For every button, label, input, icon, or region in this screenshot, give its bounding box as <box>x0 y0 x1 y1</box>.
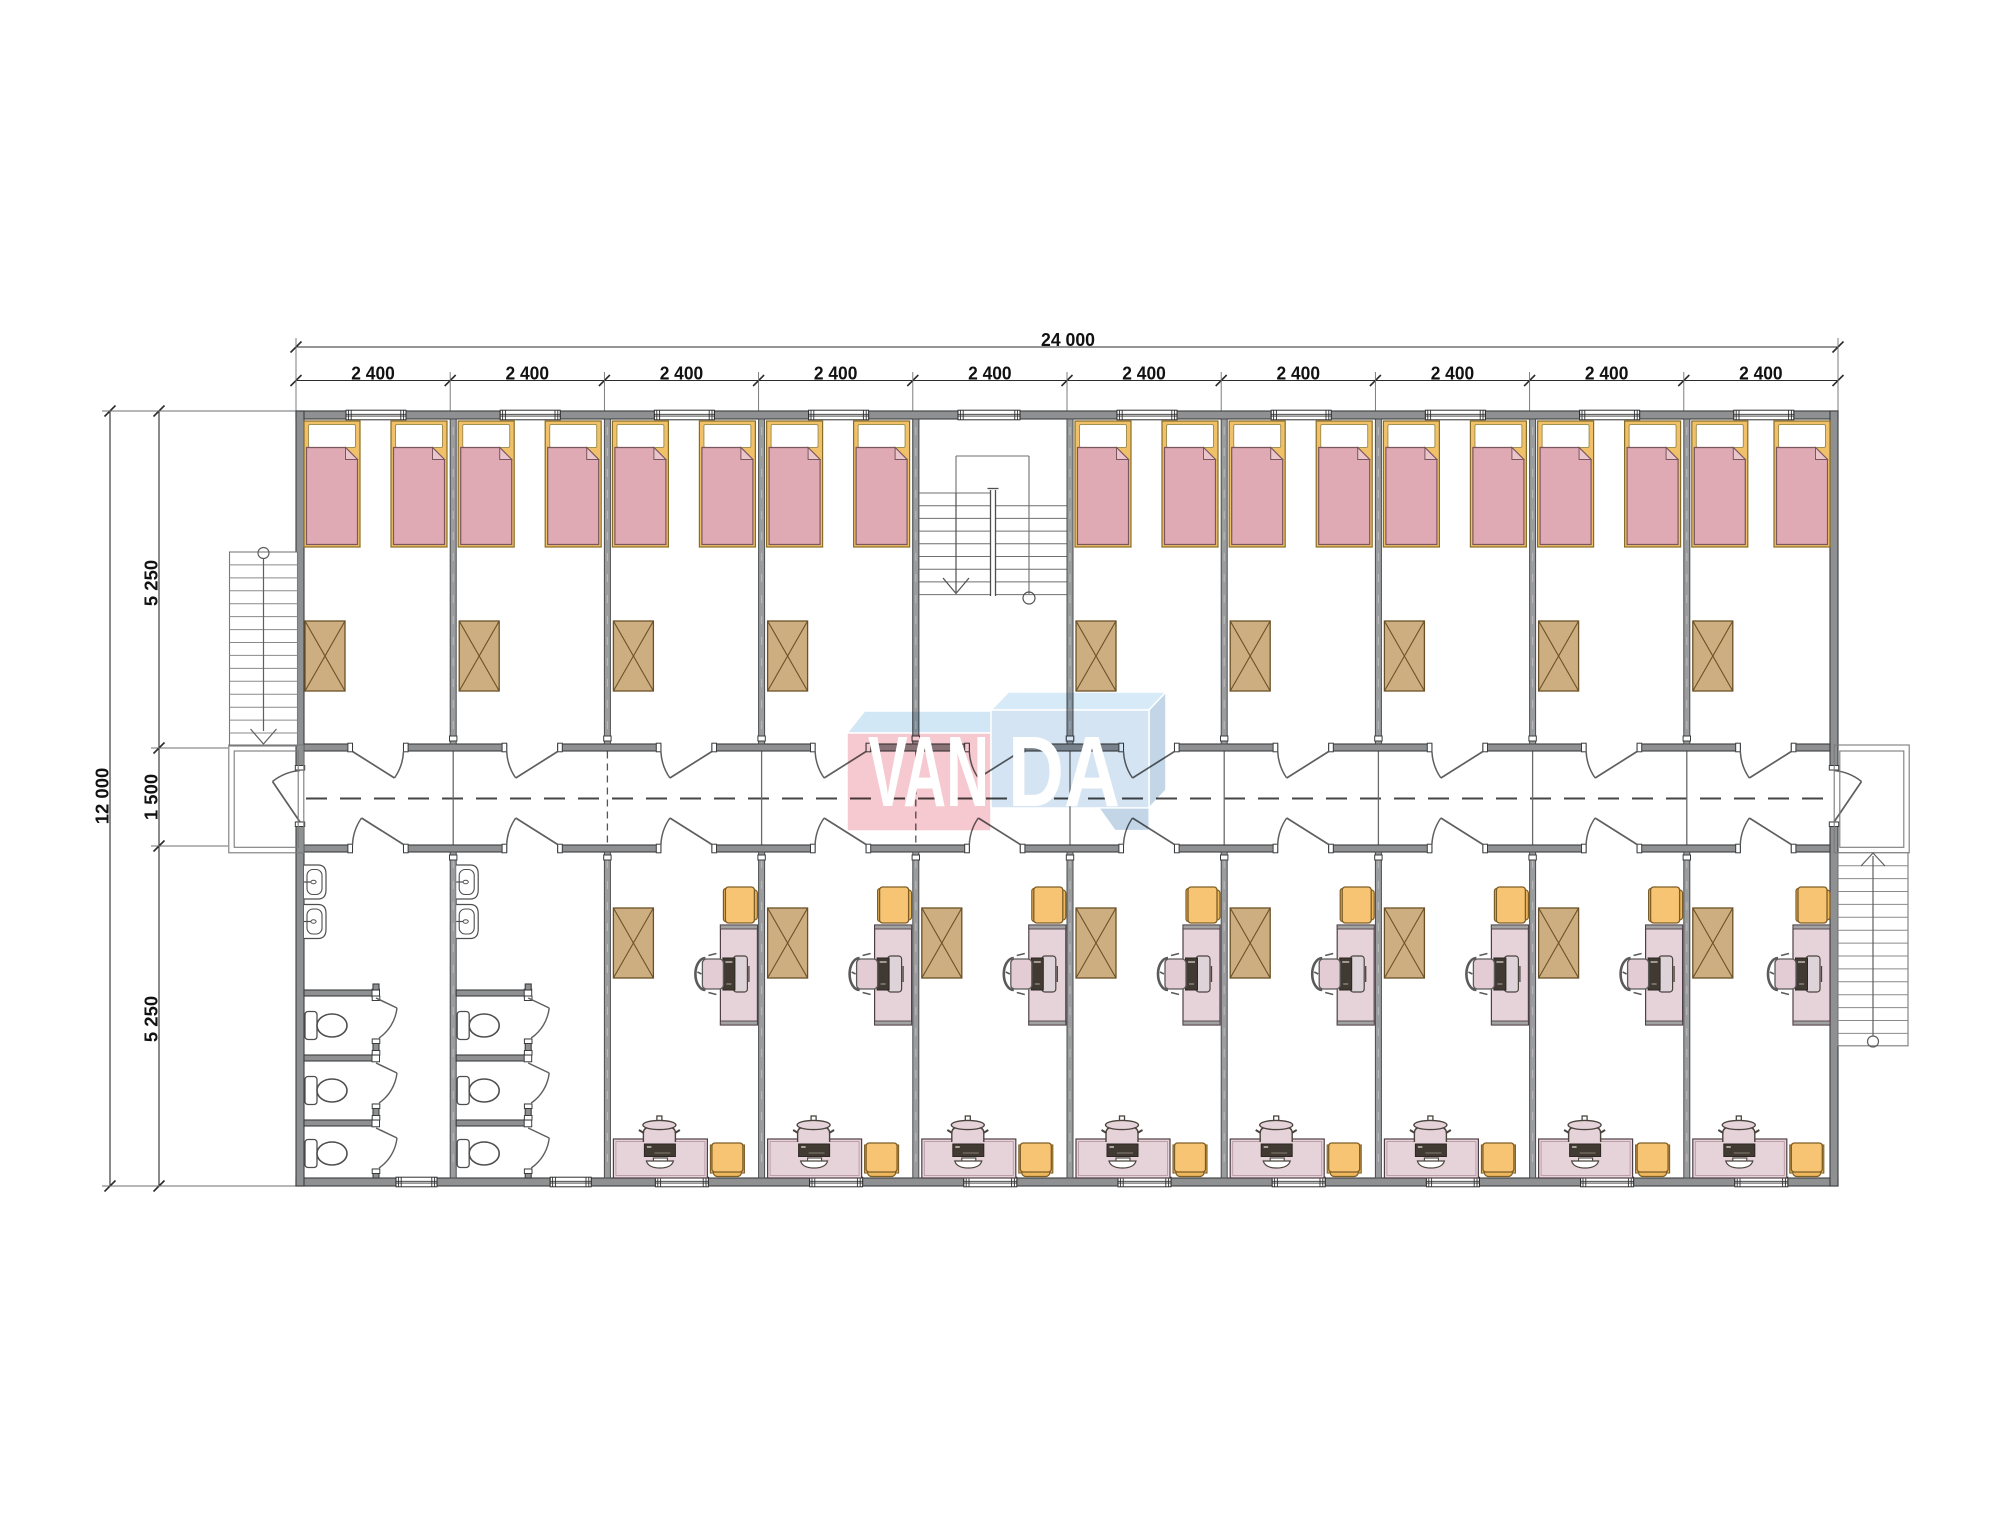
svg-text:VAN: VAN <box>868 716 989 828</box>
svg-text:2 400: 2 400 <box>1122 362 1166 383</box>
svg-text:DA: DA <box>1008 716 1120 828</box>
svg-text:24 000: 24 000 <box>1041 329 1095 350</box>
svg-text:2 400: 2 400 <box>1739 362 1783 383</box>
svg-text:2 400: 2 400 <box>1431 362 1475 383</box>
svg-text:5 250: 5 250 <box>140 996 161 1042</box>
svg-text:2 400: 2 400 <box>506 362 550 383</box>
svg-text:5 250: 5 250 <box>140 560 161 606</box>
svg-text:2 400: 2 400 <box>660 362 704 383</box>
svg-text:2 400: 2 400 <box>1277 362 1321 383</box>
svg-text:2 400: 2 400 <box>1585 362 1629 383</box>
svg-text:2 400: 2 400 <box>814 362 858 383</box>
svg-text:2 400: 2 400 <box>351 362 395 383</box>
svg-text:12 000: 12 000 <box>92 768 113 825</box>
svg-text:1 500: 1 500 <box>140 774 161 820</box>
svg-text:2 400: 2 400 <box>968 362 1012 383</box>
